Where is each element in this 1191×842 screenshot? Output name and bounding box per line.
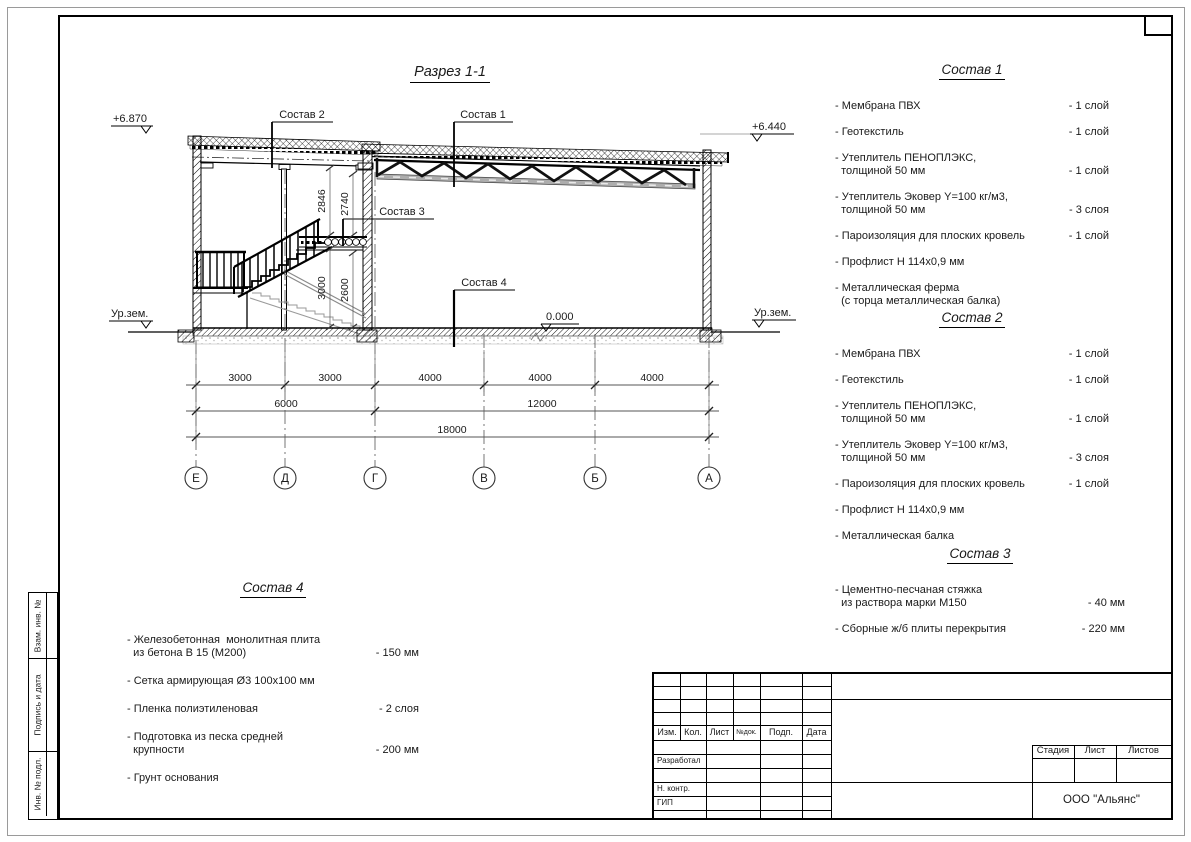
elevation-top-left: +6.870: [113, 113, 147, 125]
list-item: - Грунт основания: [127, 772, 419, 785]
dim-4000-2: 4000: [528, 372, 552, 384]
dim-12000: 12000: [527, 398, 556, 410]
vdim-2740: 2740: [339, 192, 351, 216]
walls: [193, 136, 711, 330]
vdim-2600: 2600: [339, 278, 351, 302]
axis-bubbles: Е Д Г В Б А: [185, 467, 720, 489]
list-item: - Сборные ж/б плиты перекрытия- 220 мм: [835, 623, 1125, 636]
list-item: - Утеплитель ПЕНОПЛЭКС, толщиной 50 мм- …: [835, 152, 1109, 178]
roof-left: [188, 136, 380, 170]
tb-organization: ООО "Альянс": [1032, 782, 1171, 818]
dim-4000-1: 4000: [418, 372, 442, 384]
dimension-chains: 3000 3000 4000 4000 4000 6000 12000 1800…: [186, 350, 719, 444]
dim-3000-2: 3000: [318, 372, 342, 384]
composition-3-title: Состав 3: [835, 546, 1125, 562]
leader-sostav4-label: Состав 4: [461, 277, 507, 289]
sidebar-label-vzam: Взам. инв. №: [33, 599, 43, 652]
section-title-text: Разрез 1-1: [410, 64, 490, 83]
composition-list-4: Состав 4 - Железобетонная монолитная пли…: [127, 580, 419, 800]
vdim-2846: 2846: [316, 189, 328, 213]
section-title: Разрез 1-1: [398, 64, 502, 83]
tb-sheets: Листов: [1116, 744, 1171, 758]
sidebar-label-wrap: Инв. № подл.: [29, 752, 47, 816]
list-item: - Подготовка из песка средней крупности-…: [127, 731, 419, 757]
composition-list-3: Состав 3 - Цементно-песчаная стяжка из р…: [835, 546, 1125, 649]
leader-sostav3-label: Состав 3: [379, 206, 425, 218]
composition-4-title: Состав 4: [127, 580, 419, 596]
elevation-zero: 0.000: [546, 311, 574, 323]
list-item: - Утеплитель Эковер Y=100 кг/м3, толщино…: [835, 191, 1109, 217]
list-item: - Мембрана ПВХ- 1 слой: [835, 348, 1109, 361]
tb-sheet: Лист: [1074, 744, 1116, 758]
tb-stage: Стадия: [1032, 744, 1074, 758]
title-block: Изм. Кол. Лист №док. Подп. Дата Разработ…: [652, 672, 1173, 820]
tb-col-data: Дата: [802, 725, 831, 740]
leader-sostav2-label: Состав 2: [279, 109, 325, 121]
axis-label-b: Б: [591, 473, 599, 485]
axis-lines: [196, 170, 709, 467]
sidebar-cell-podpis: Подпись и дата: [29, 659, 57, 752]
axis-label-v: В: [480, 473, 488, 485]
sidebar-label-wrap: Взам. инв. №: [29, 593, 47, 658]
list-item: - Железобетонная монолитная плита из бет…: [127, 634, 419, 660]
tb-col-izm: Изм.: [654, 725, 680, 740]
ground-level-left: Ур.зем.: [111, 308, 148, 320]
list-item: - Геотекстиль- 1 слой: [835, 374, 1109, 387]
list-item: - Металлическая ферма (с торца металличе…: [835, 282, 1109, 308]
sidebar-label-inv: Инв. № подл.: [33, 758, 43, 811]
dim-18000: 18000: [437, 424, 466, 436]
list-item: - Пленка полиэтиленовая- 2 слоя: [127, 703, 419, 716]
composition-1-title: Состав 1: [835, 62, 1109, 78]
tb-row-ncontr: Н. контр.: [657, 782, 690, 796]
tb-col-podp: Подп.: [760, 725, 802, 740]
tb-col-ndok: №док.: [733, 725, 760, 740]
axis-label-g: Г: [372, 473, 379, 485]
dim-6000: 6000: [274, 398, 298, 410]
list-item: - Мембрана ПВХ- 1 слой: [835, 100, 1109, 113]
composition-2-title: Состав 2: [835, 310, 1109, 326]
sidebar-attribute-column: Взам. инв. № Подпись и дата Инв. № подл.: [28, 592, 58, 820]
tb-row-developed: Разработал: [657, 754, 701, 768]
ground-level-right: Ур.зем.: [754, 307, 791, 319]
vdim-3000: 3000: [316, 276, 328, 300]
list-item: - Геотекстиль- 1 слой: [835, 126, 1109, 139]
composition-list-1: Состав 1 - Мембрана ПВХ- 1 слой - Геотек…: [835, 62, 1109, 321]
axis-label-e: Е: [192, 473, 200, 485]
tb-row-gip: ГИП: [657, 796, 673, 810]
elevation-top-right: +6.440: [752, 121, 786, 133]
composition-list-2: Состав 2 - Мембрана ПВХ- 1 слой - Геотек…: [835, 310, 1109, 556]
list-item: - Утеплитель Эковер Y=100 кг/м3, толщино…: [835, 439, 1109, 465]
dim-3000-1: 3000: [228, 372, 252, 384]
leader-sostav1-label: Состав 1: [460, 109, 506, 121]
axis-label-a: А: [705, 473, 713, 485]
list-item: - Сетка армирующая Ø3 100х100 мм: [127, 675, 419, 688]
tb-col-list: Лист: [706, 725, 733, 740]
sidebar-cell-vzam: Взам. инв. №: [29, 593, 57, 659]
list-item: - Утеплитель ПЕНОПЛЭКС, толщиной 50 мм- …: [835, 400, 1109, 426]
tb-col-kol: Кол.: [680, 725, 706, 740]
list-item: - Цементно-песчаная стяжка из раствора м…: [835, 584, 1125, 610]
list-item: - Металлическая балка: [835, 530, 1109, 543]
sidebar-cell-inv: Инв. № подл.: [29, 752, 57, 816]
list-item: - Пароизоляция для плоских кровель- 1 сл…: [835, 478, 1109, 491]
sidebar-label-podpis: Подпись и дата: [33, 674, 43, 735]
dim-4000-3: 4000: [640, 372, 664, 384]
list-item: - Профлист Н 114х0,9 мм: [835, 504, 1109, 517]
list-item: - Пароизоляция для плоских кровель- 1 сл…: [835, 230, 1109, 243]
axis-label-d: Д: [281, 473, 289, 485]
sidebar-label-wrap: Подпись и дата: [29, 659, 47, 751]
list-item: - Профлист Н 114х0,9 мм: [835, 256, 1109, 269]
